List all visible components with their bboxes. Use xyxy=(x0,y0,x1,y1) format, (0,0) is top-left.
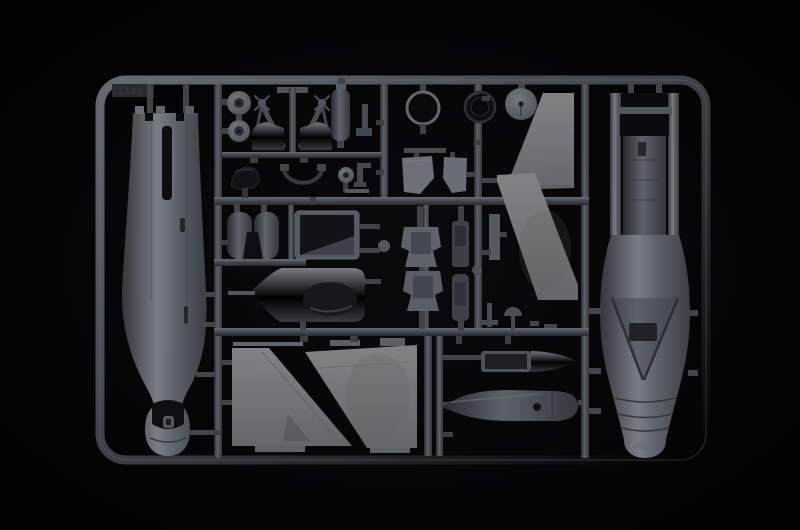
photo-vignette xyxy=(0,0,800,530)
photo-stage: 1389 xyxy=(0,0,800,530)
sprue-photo: 1389 xyxy=(0,0,800,530)
